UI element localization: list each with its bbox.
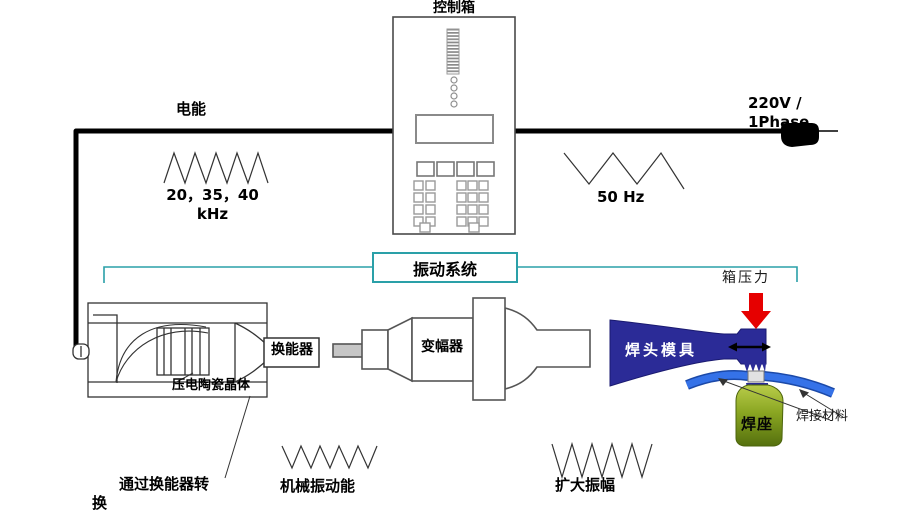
generator-frequency-label: 20，35，40 kHz — [150, 186, 275, 224]
anvil-label: 焊座 — [741, 415, 773, 434]
weld-horn-label: 焊头模具 — [625, 341, 697, 360]
ultrasonic-welding-diagram: 控制箱 电能 20，35，40 kHz 220V / 1Phase 50 Hz … — [0, 0, 908, 529]
booster-flange — [473, 298, 505, 400]
control-box — [393, 17, 515, 234]
vibration-system-label: 振动系统 — [413, 256, 477, 280]
booster-stub — [333, 344, 363, 357]
mains-frequency-label: 50 Hz — [597, 188, 644, 207]
mechanical-vibration-wave — [282, 446, 377, 468]
electric-energy-label: 电能 — [176, 100, 256, 119]
weld-joint-block — [748, 371, 764, 382]
pressure-arrow-icon — [741, 293, 771, 329]
vibration-system-title-box: 振动系统 — [372, 252, 518, 283]
pressure-label: 箱压力 — [722, 270, 770, 288]
amplify-amplitude-label: 扩大振幅 — [555, 476, 615, 495]
mains-power-label: 220V / 1Phase — [748, 94, 809, 132]
mechanical-vibration-label: 机械振动能 — [280, 477, 355, 496]
amplified-vibration-wave — [552, 444, 652, 477]
cable-connector-icon — [73, 344, 89, 359]
frequency-wave-left — [164, 153, 268, 183]
display-screen — [416, 115, 493, 143]
vent-bar — [447, 29, 459, 74]
piezo-ceramic-label: 压电陶瓷晶体 — [172, 378, 250, 394]
weld-material-label: 焊接材料 — [796, 409, 848, 425]
booster-label: 变幅器 — [410, 339, 474, 357]
control-box-label: 控制箱 — [393, 0, 515, 18]
transducer-label: 换能器 — [265, 342, 319, 360]
convert-pointer-line — [225, 396, 250, 478]
convert-by-transducer-label: 通过换能器转 换 — [92, 475, 252, 513]
mains-wave-50hz — [564, 153, 684, 189]
